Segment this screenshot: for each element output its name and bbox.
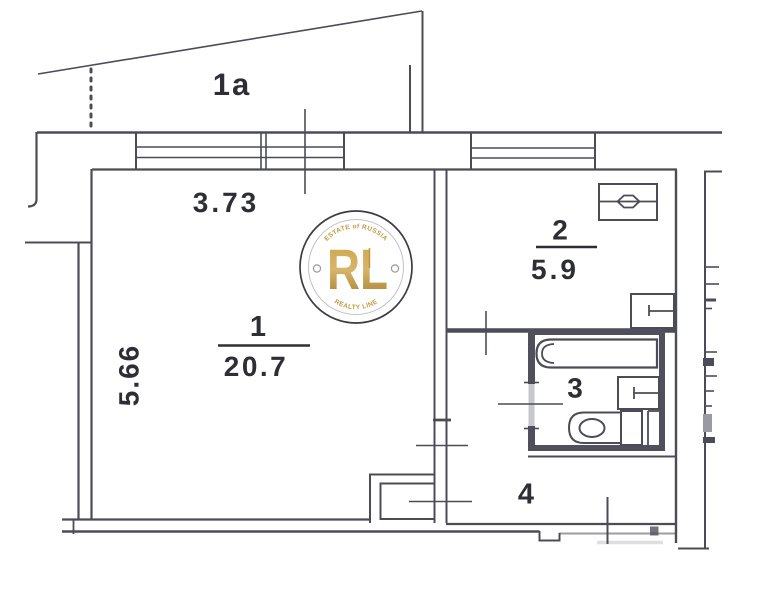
- svg-text:3: 3: [567, 373, 583, 404]
- svg-text:2: 2: [552, 215, 568, 246]
- svg-text:RL: RL: [327, 238, 388, 302]
- svg-text:1a: 1a: [213, 67, 251, 102]
- svg-text:3.73: 3.73: [193, 187, 260, 218]
- svg-text:4: 4: [518, 479, 534, 511]
- svg-text:5.66: 5.66: [113, 344, 144, 407]
- svg-text:1: 1: [250, 311, 266, 343]
- svg-text:5.9: 5.9: [531, 254, 579, 285]
- svg-text:20.7: 20.7: [224, 351, 289, 382]
